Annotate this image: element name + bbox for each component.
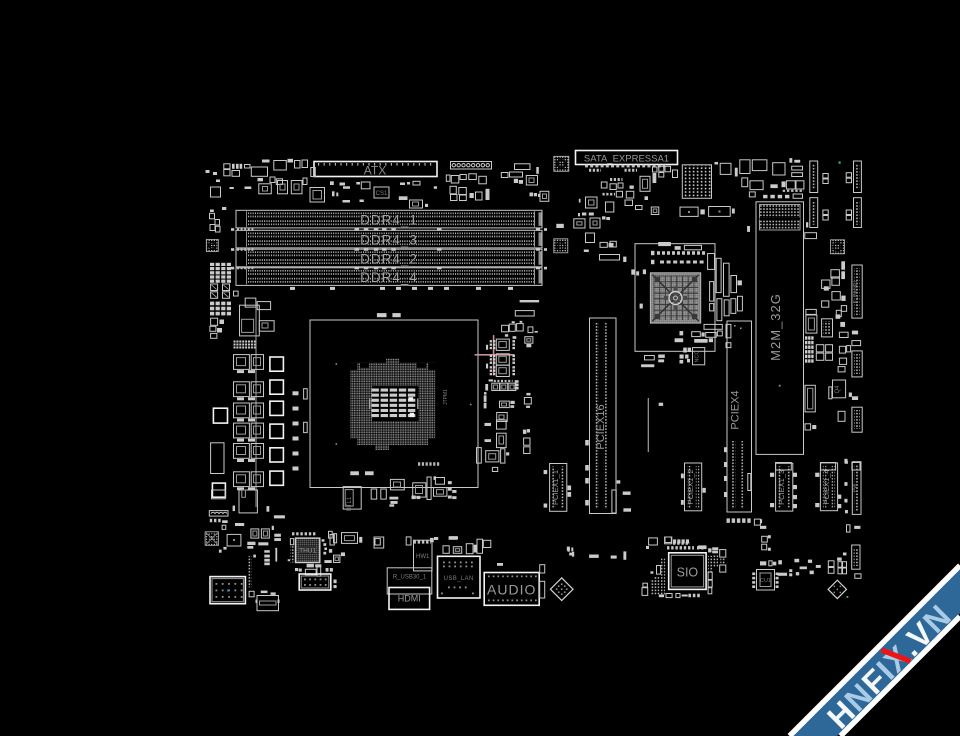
svg-text:PCIEX1_3: PCIEX1_3 — [777, 470, 786, 505]
svg-text:PCIEX1_2: PCIEX1_2 — [686, 469, 695, 504]
svg-text:ATX: ATX — [364, 164, 386, 178]
svg-text:PCIEX1_4: PCIEX1_4 — [822, 469, 831, 504]
svg-text:CS1: CS1 — [376, 191, 388, 197]
svg-text:JTPM1: JTPM1 — [443, 389, 449, 405]
svg-text:M2M_32G: M2M_32G — [768, 293, 783, 361]
svg-text:BTL1: BTL1 — [347, 496, 353, 511]
svg-text:PCIEX4: PCIEX4 — [730, 390, 742, 429]
svg-text:PW: PW — [853, 483, 859, 493]
svg-text:SATA_EXPRESSA1: SATA_EXPRESSA1 — [584, 154, 669, 165]
svg-text:CU1: CU1 — [760, 578, 771, 584]
svg-text:DDR4_1: DDR4_1 — [360, 213, 418, 228]
svg-text:PCIEX1_1: PCIEX1_1 — [551, 470, 560, 505]
svg-text:AUDIO: AUDIO — [487, 582, 536, 598]
svg-text:NCC: NCC — [695, 351, 701, 363]
svg-text:HDMI: HDMI — [398, 594, 421, 604]
svg-text:F_PANEL: F_PANEL — [853, 279, 859, 303]
svg-text:Q4: Q4 — [835, 385, 841, 394]
svg-text:R_USB30_1: R_USB30_1 — [393, 575, 427, 581]
svg-text:THU1: THU1 — [299, 548, 316, 555]
svg-text:DDR4_4: DDR4_4 — [360, 270, 418, 285]
svg-text:DDR4_2: DDR4_2 — [360, 252, 418, 267]
svg-text:SIO: SIO — [677, 566, 699, 580]
svg-text:HW1: HW1 — [416, 554, 430, 560]
svg-text:USB_LAN: USB_LAN — [444, 576, 474, 582]
svg-text:PCIEX16: PCIEX16 — [595, 404, 607, 449]
svg-text:DDR4_3: DDR4_3 — [360, 233, 418, 248]
